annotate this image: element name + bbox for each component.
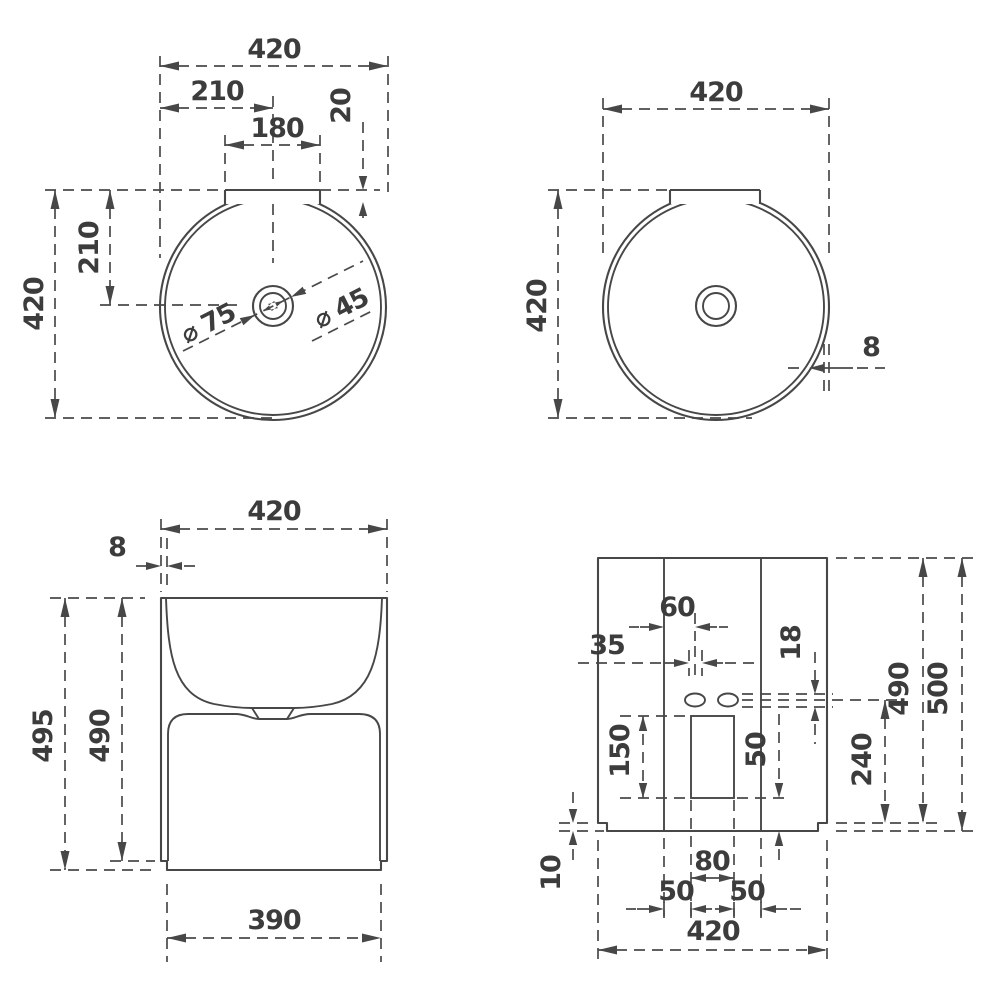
plan2-drain-outer-circle [696,286,736,326]
back-view: 60 35 18 150 50 240 490 500 10 80 50 50 … [536,558,976,962]
plan2-arrowheads [554,105,830,419]
dim-label-back-left-gap: 50 [658,876,694,907]
dim-label-back-hole-gap: 35 [589,630,625,661]
front-drain-funnel [252,708,294,719]
dim-label-back-cutout-to-bottom: 50 [741,732,772,768]
back-service-cutout [691,716,734,798]
technical-drawing-canvas: 420 210 180 20 420 210 ⌀ 75 ⌀ 45 420 420… [0,0,1000,1000]
dim-label-back-hole-offset: 60 [659,592,695,623]
front-view: 420 8 495 490 390 [28,496,387,962]
plan2-drain-inner-circle [703,293,729,319]
dim-label-back-width: 420 [686,916,740,947]
dim-label-plan1-drain-inner: ⌀ 45 [309,283,373,336]
back-body-outline [598,558,827,831]
dim-label-plan2-depth: 420 [522,279,553,333]
dim-label-front-base-width: 390 [247,905,301,936]
plan-view-plain: 420 420 8 [522,77,885,420]
plan-view-dimensioned: 420 210 180 20 420 210 ⌀ 75 ⌀ 45 [19,34,388,420]
dim-label-plan1-ledge-width: 180 [250,113,304,144]
dim-label-plan1-depth: 420 [19,277,50,331]
back-fixing-slot-left [685,694,705,707]
dim-label-front-height: 495 [28,709,59,762]
dim-label-back-cutout-width: 80 [694,846,730,877]
dim-label-front-inner-height: 490 [85,709,116,763]
dim-label-front-width: 420 [247,496,301,527]
front-apron-panel [168,714,380,861]
dim-label-plan1-half-depth: 210 [74,221,105,275]
plan2-rim-outer-circle [603,194,829,420]
dim-label-back-total-height: 500 [923,662,954,716]
plan2-rim-inner-circle [608,199,824,415]
back-fixing-slot-right [718,694,738,707]
drawing-sheet: 420 210 180 20 420 210 ⌀ 75 ⌀ 45 420 420… [0,0,1000,1000]
dim-label-plan2-wall: 8 [862,332,880,363]
dim-label-back-right-gap: 50 [729,876,765,907]
dim-label-plan2-width: 420 [689,77,743,108]
dim-label-plan1-half-width: 210 [190,76,244,107]
front-body-outline [161,598,387,870]
dim-label-front-wall: 8 [108,532,126,563]
plan2-dimension-lines [548,98,885,418]
dim-label-back-drop: 240 [847,733,878,787]
dim-label-back-slot-floor-height: 490 [884,662,915,716]
plan2-tap-ledge-mask [671,186,759,204]
dim-label-back-plinth: 10 [536,855,567,891]
dim-label-back-cutout-height: 150 [605,724,636,778]
dim-label-back-slot-height: 18 [776,625,807,661]
front-basin-interior [166,598,382,708]
dim-label-plan1-ledge-depth: 20 [326,88,357,124]
plan1-tap-ledge-mask [226,186,319,204]
dim-label-plan1-width: 420 [247,34,301,65]
